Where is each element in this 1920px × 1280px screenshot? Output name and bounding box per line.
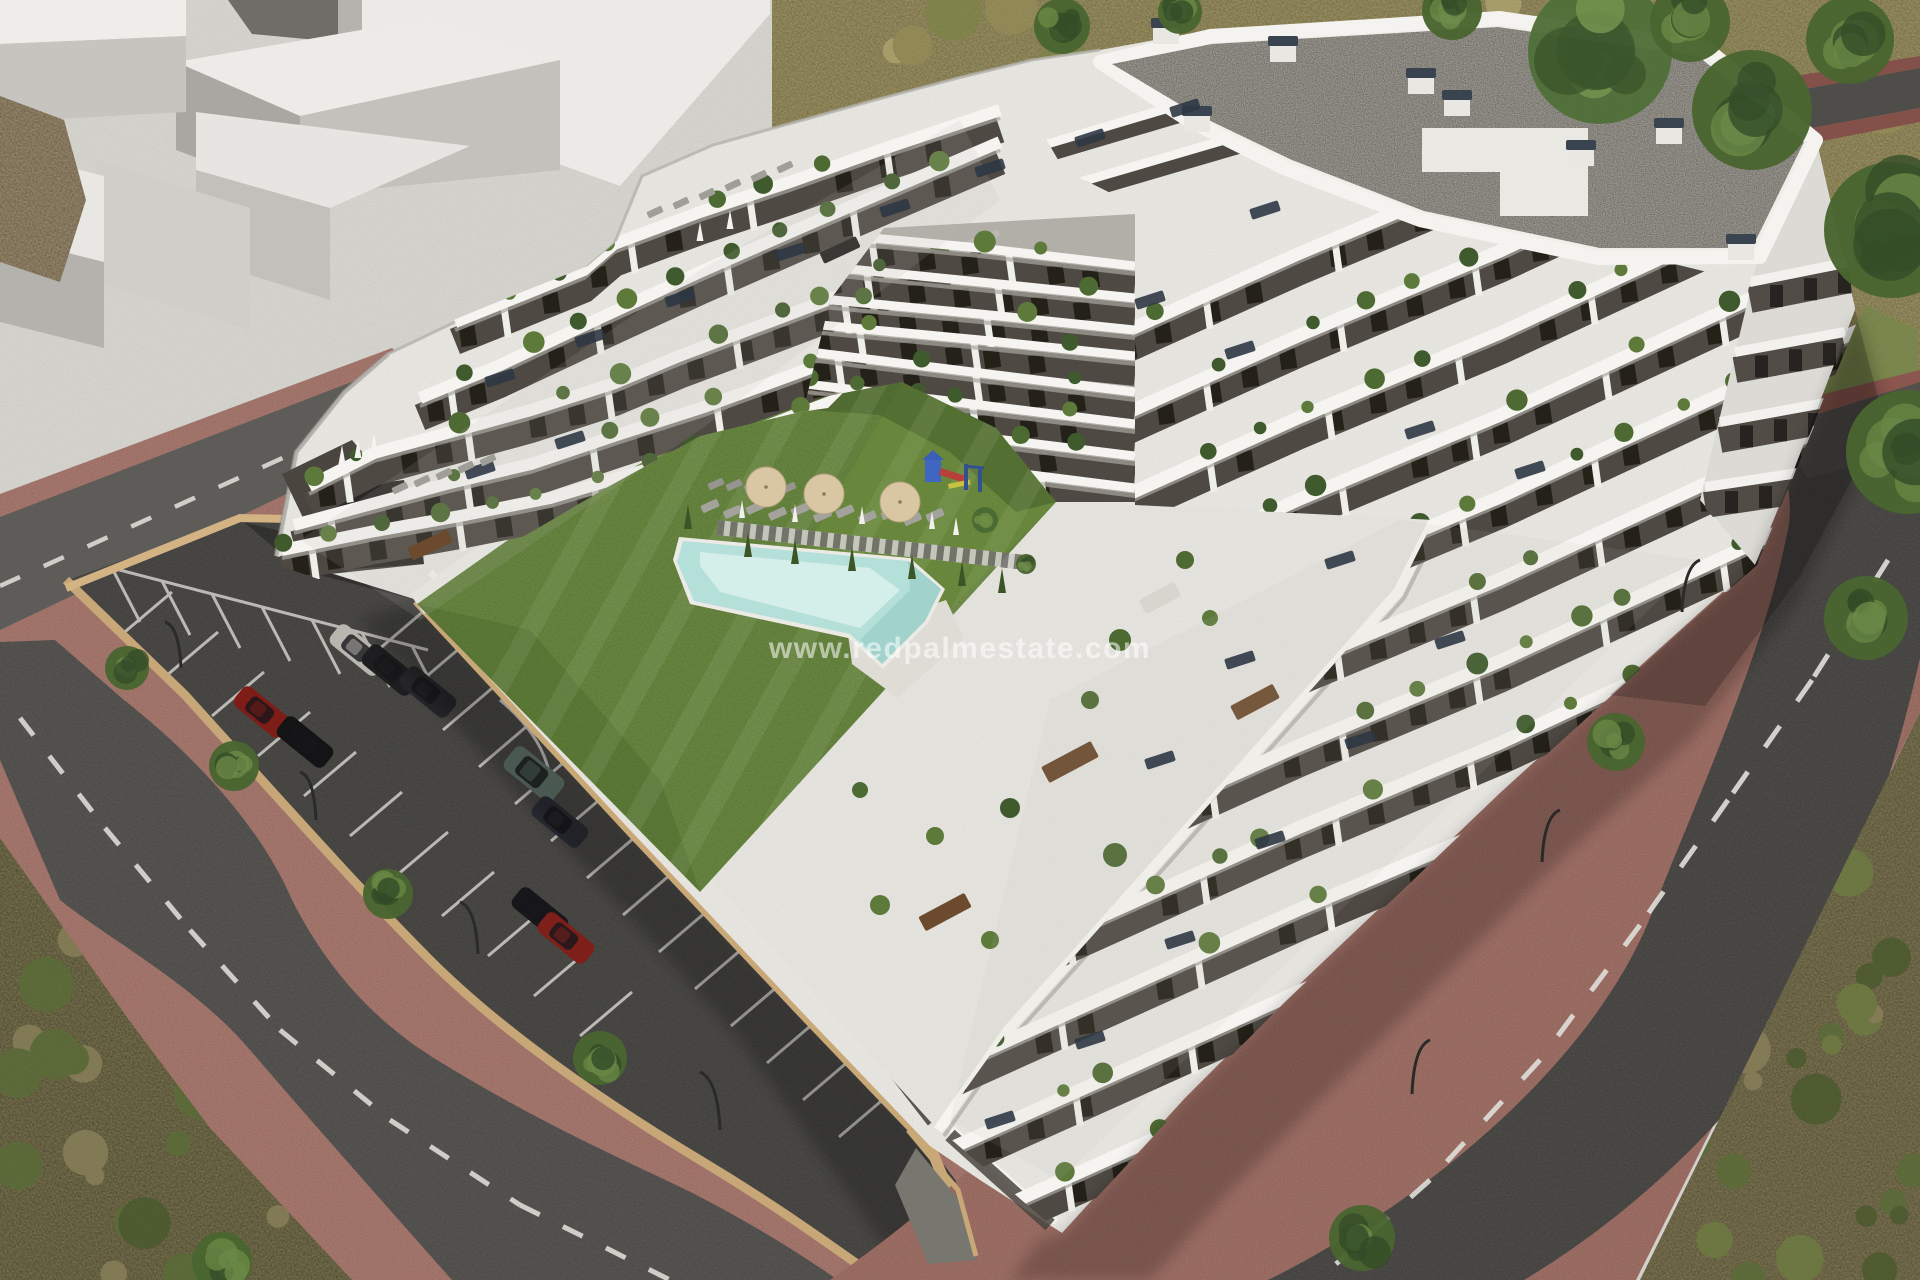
- svg-text:www.redpalmestate.com: www.redpalmestate.com: [768, 632, 1151, 665]
